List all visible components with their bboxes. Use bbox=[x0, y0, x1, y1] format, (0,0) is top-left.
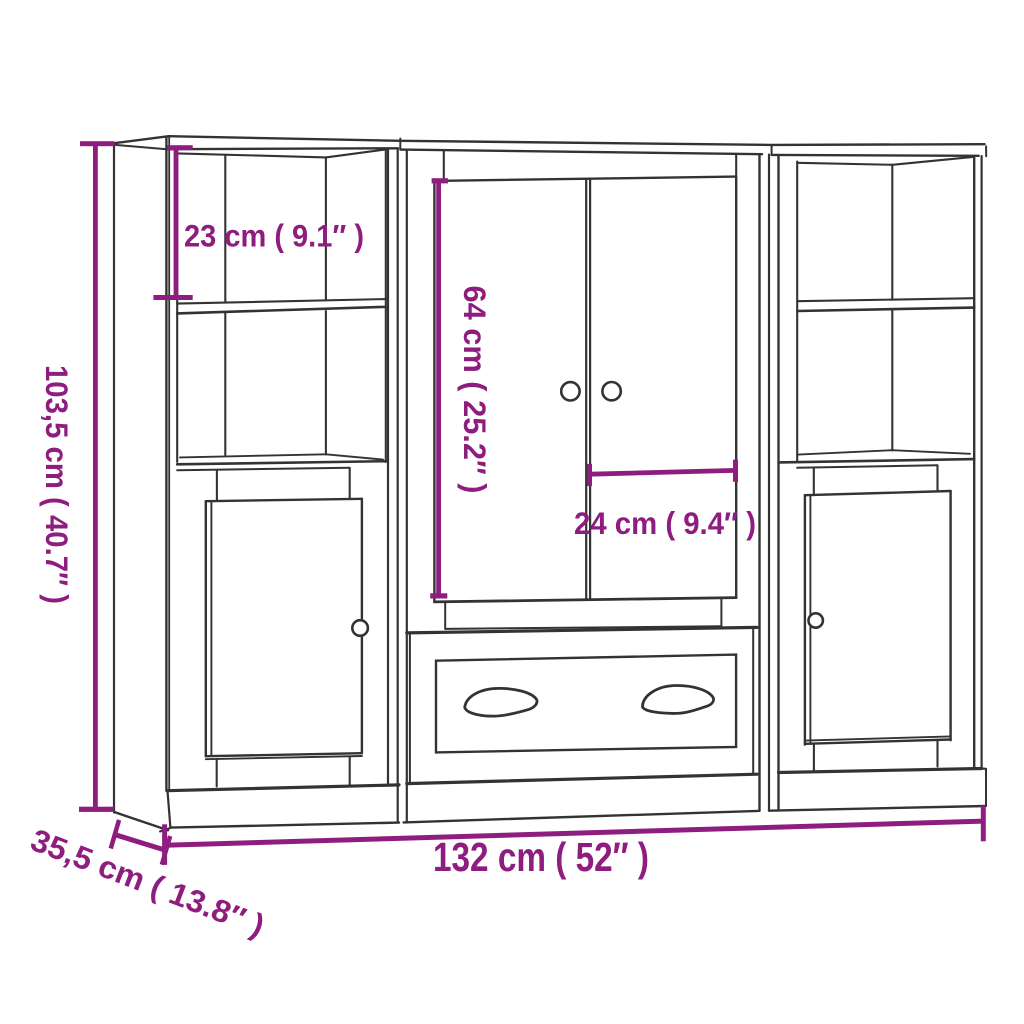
svg-text:64 cm ( 25.2″ ): 64 cm ( 25.2″ ) bbox=[457, 286, 493, 494]
svg-text:24 cm ( 9.4″ ): 24 cm ( 9.4″ ) bbox=[574, 505, 756, 541]
svg-text:103,5 cm ( 40.7″ ): 103,5 cm ( 40.7″ ) bbox=[39, 365, 75, 604]
svg-text:23 cm ( 9.1″ ): 23 cm ( 9.1″ ) bbox=[184, 218, 364, 254]
svg-text:132 cm ( 52″ ): 132 cm ( 52″ ) bbox=[433, 834, 649, 880]
